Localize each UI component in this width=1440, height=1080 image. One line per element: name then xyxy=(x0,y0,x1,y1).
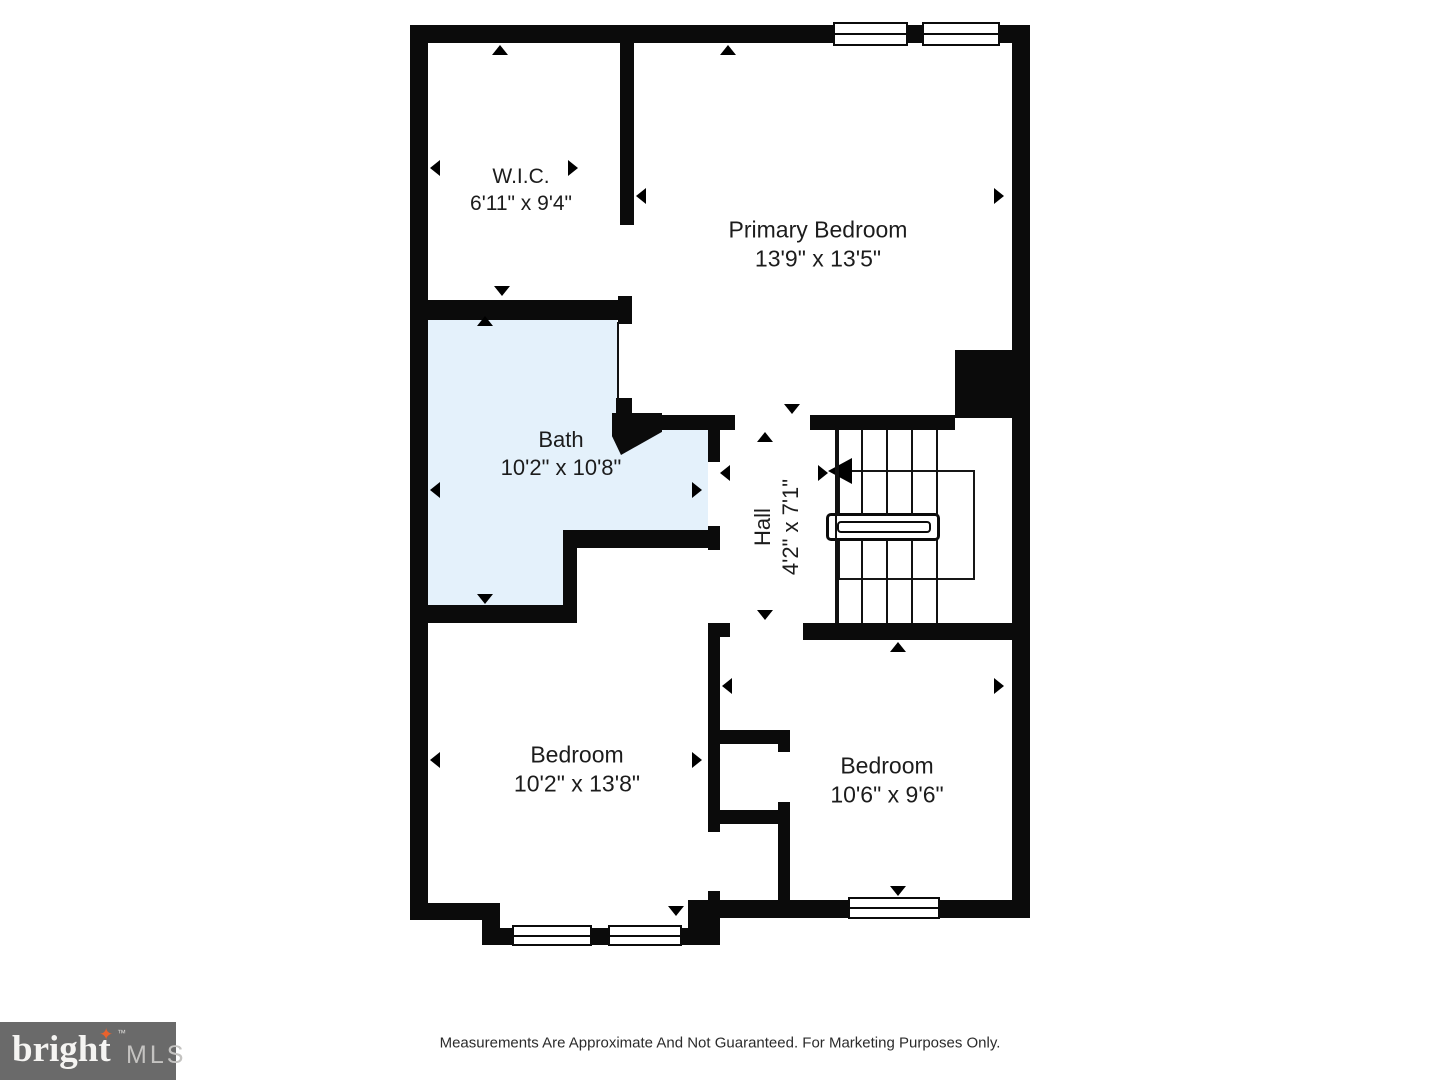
room-dims: 10'2" x 13'8" xyxy=(514,770,640,799)
stair-handrail-inner xyxy=(837,521,931,533)
window xyxy=(512,925,592,946)
room-name: Bedroom xyxy=(830,752,943,781)
logo-suffix-text: MLS xyxy=(126,1041,186,1070)
window-pane-line xyxy=(610,935,680,937)
wall-segment xyxy=(616,398,632,416)
dimension-arrow-left-icon xyxy=(430,752,440,768)
dimension-arrow-down-icon xyxy=(784,404,800,414)
wall-segment xyxy=(778,802,790,824)
dimension-arrow-left-icon xyxy=(430,160,440,176)
room-name: Bath xyxy=(501,426,622,454)
stair-tread-line xyxy=(861,540,863,623)
window xyxy=(608,925,682,946)
wall-segment xyxy=(955,350,1012,418)
room-name: Hall xyxy=(749,479,777,575)
wall-segment xyxy=(410,300,618,320)
dimension-arrow-up-icon xyxy=(890,642,906,652)
room-label-wic: W.I.C. 6'11" x 9'4" xyxy=(470,164,572,218)
wall-segment xyxy=(803,623,1012,640)
wall-segment xyxy=(618,296,632,324)
trademark-symbol: ™ xyxy=(117,1028,126,1038)
stair-tread-line xyxy=(936,540,938,623)
dimension-arrow-up-icon xyxy=(477,316,493,326)
room-label-hall: Hall 4'2" x 7'1" xyxy=(749,479,805,575)
room-label-primary-bedroom: Primary Bedroom 13'9" x 13'5" xyxy=(729,216,908,275)
floor-plan: W.I.C. 6'11" x 9'4" Primary Bedroom 13'9… xyxy=(0,0,1440,1080)
room-label-bedroom-left: Bedroom 10'2" x 13'8" xyxy=(514,741,640,800)
wall-segment xyxy=(778,730,790,752)
window-pane-line xyxy=(514,935,590,937)
room-label-bath: Bath 10'2" x 10'8" xyxy=(501,426,622,482)
dimension-arrow-right-icon xyxy=(692,752,702,768)
room-name: W.I.C. xyxy=(470,164,572,191)
wall-segment xyxy=(1012,25,1030,918)
dimension-arrow-up-icon xyxy=(757,432,773,442)
window-pane-line xyxy=(835,33,906,35)
dimension-arrow-up-icon xyxy=(720,45,736,55)
dimension-arrow-right-icon xyxy=(994,188,1004,204)
dimension-arrow-right-icon xyxy=(818,465,828,481)
dimension-arrow-down-icon xyxy=(477,594,493,604)
logo-brand-text: bright xyxy=(12,1028,111,1071)
dimension-arrow-down-icon xyxy=(890,886,906,896)
stair-direction-arrow-icon xyxy=(828,458,852,484)
wall-segment xyxy=(620,25,634,225)
stair-tread-line xyxy=(837,430,839,516)
room-dims: 10'6" x 9'6" xyxy=(830,781,943,810)
wall-segment xyxy=(810,415,955,430)
stair-tread-line xyxy=(837,540,839,623)
room-dims: 10'2" x 10'8" xyxy=(501,454,622,482)
window-pane-line xyxy=(850,907,938,909)
room-name: Primary Bedroom xyxy=(729,216,908,245)
stair-tread-line xyxy=(911,430,913,516)
stair-tread-line xyxy=(886,540,888,623)
dimension-arrow-down-icon xyxy=(757,610,773,620)
dimension-arrow-right-icon xyxy=(994,678,1004,694)
stair-tread-line xyxy=(911,540,913,623)
dimension-arrow-up-icon xyxy=(492,45,508,55)
stair-tread-line xyxy=(617,322,619,400)
star-icon: ✦ xyxy=(99,1025,113,1045)
wall-segment xyxy=(563,530,720,548)
wall-segment xyxy=(410,605,577,623)
window xyxy=(833,22,908,46)
dimension-arrow-right-icon xyxy=(568,160,578,176)
room-dims: 4'2" x 7'1" xyxy=(777,479,805,575)
dimension-arrow-left-icon xyxy=(722,678,732,694)
wall-segment xyxy=(708,415,720,462)
window-pane-line xyxy=(924,33,998,35)
dimension-arrow-left-icon xyxy=(720,465,730,481)
stair-tread-line xyxy=(936,430,938,516)
bright-mls-logo: bright ✦ ™ MLS xyxy=(0,1022,176,1080)
dimension-arrow-down-icon xyxy=(668,906,684,916)
room-label-bedroom-right: Bedroom 10'6" x 9'6" xyxy=(830,752,943,811)
disclaimer-text: Measurements Are Approximate And Not Gua… xyxy=(440,1035,1001,1052)
window xyxy=(848,897,940,919)
dimension-arrow-right-icon xyxy=(692,482,702,498)
wall-segment xyxy=(410,25,428,920)
dimension-arrow-left-icon xyxy=(430,482,440,498)
room-name: Bedroom xyxy=(514,741,640,770)
stair-tread-line xyxy=(886,430,888,516)
window xyxy=(922,22,1000,46)
room-dims: 13'9" x 13'5" xyxy=(729,245,908,274)
stair-tread-line xyxy=(861,430,863,516)
wall-segment xyxy=(708,623,730,637)
dimension-arrow-left-icon xyxy=(636,188,646,204)
dimension-arrow-down-icon xyxy=(494,286,510,296)
room-dims: 6'11" x 9'4" xyxy=(470,191,572,218)
